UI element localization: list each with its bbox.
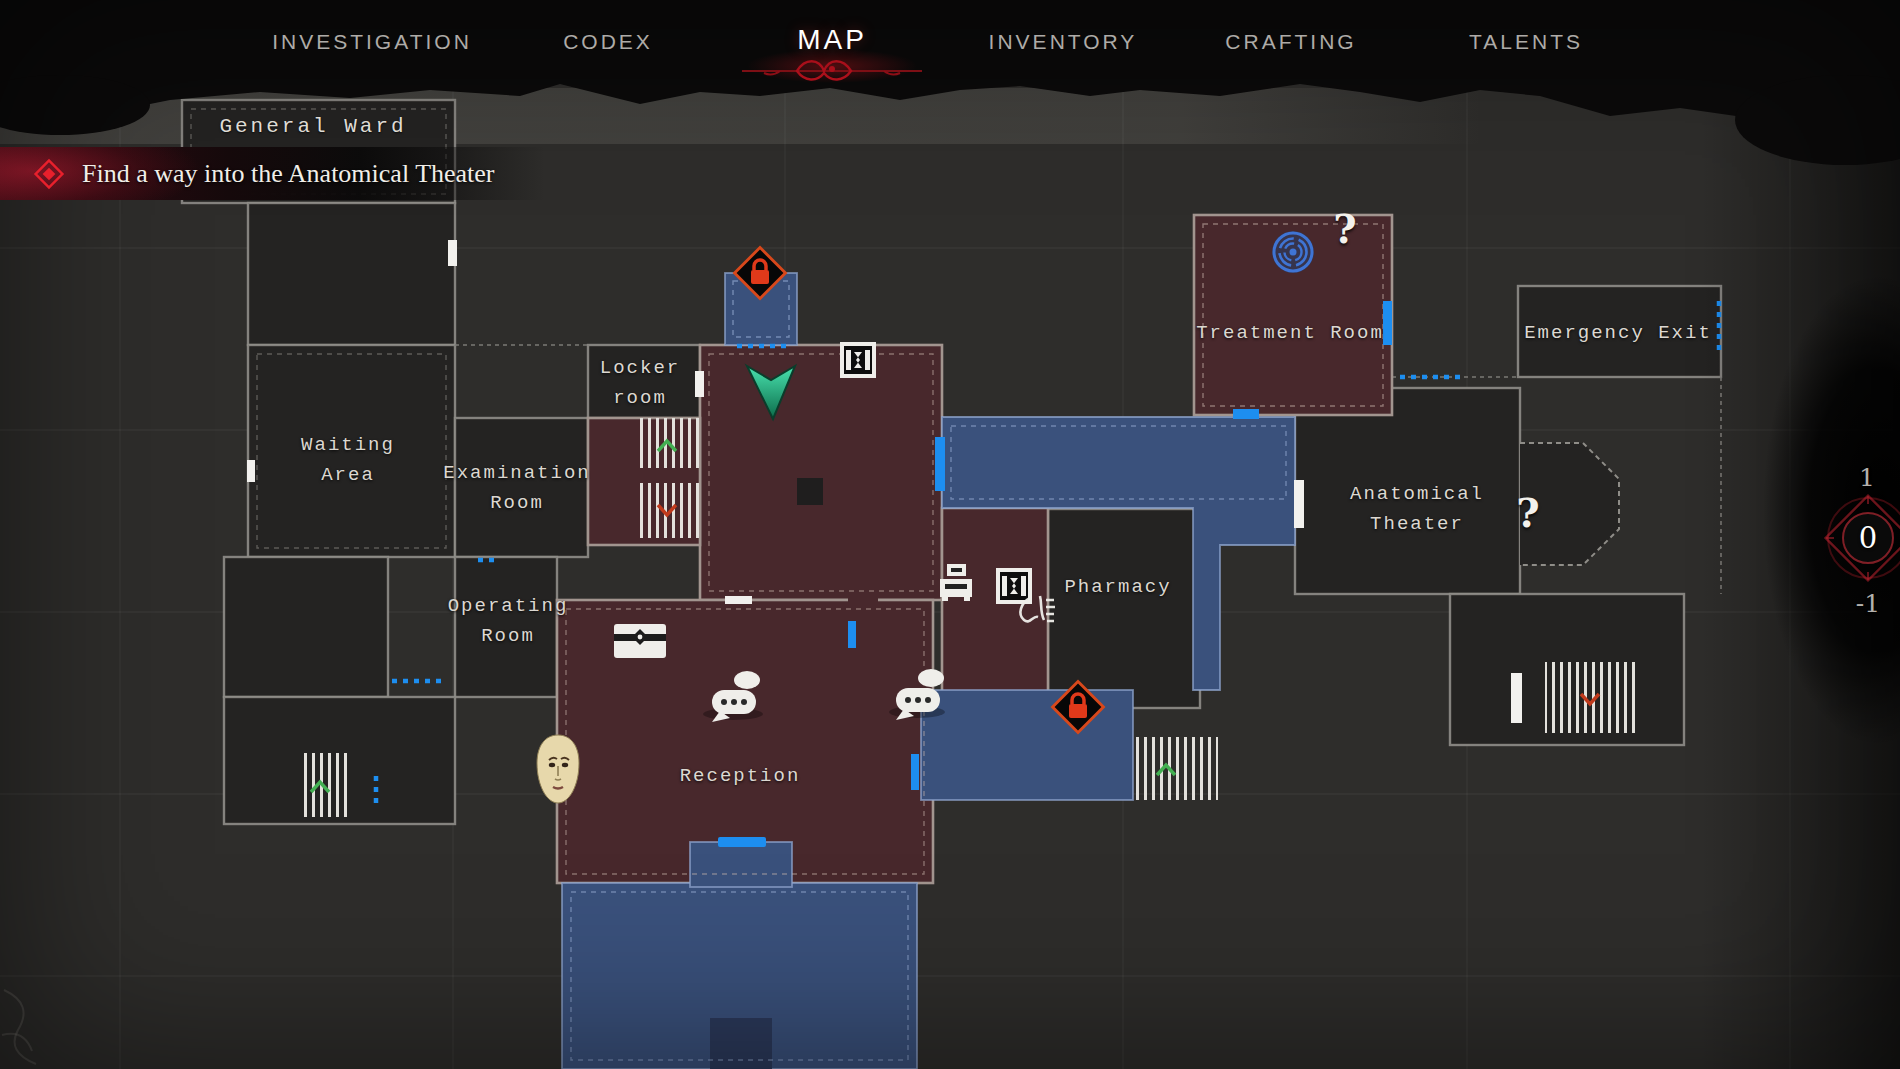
- wall-opening: [848, 596, 878, 604]
- room-main-hall: [700, 345, 942, 600]
- tab-map[interactable]: MAP: [797, 24, 867, 56]
- room-label-pharmacy: Pharmacy: [1064, 572, 1171, 602]
- room-label-examination-room: Examination Room: [443, 458, 590, 519]
- zone-label: General Ward: [219, 115, 406, 138]
- tab-crafting[interactable]: CRAFTING: [1225, 30, 1356, 54]
- room-label-waiting-area: Waiting Area: [301, 430, 395, 491]
- room-pharmacy: [1048, 509, 1200, 708]
- objective-diamond-icon: [33, 158, 65, 190]
- floor-button-0[interactable]: 0: [1859, 521, 1877, 555]
- room-label-operating-room: Operating Room: [448, 591, 569, 652]
- stairs-block-s: [1133, 737, 1218, 800]
- room-label-anatomical-theater: Anatomical Theater: [1350, 479, 1484, 540]
- unknown-marker: ?: [1333, 205, 1356, 252]
- floor-button-minus1[interactable]: -1: [1856, 589, 1880, 618]
- tab-investigation[interactable]: INVESTIGATION: [272, 30, 472, 54]
- hall-pillar: [797, 478, 823, 505]
- elevator-icon: [998, 570, 1030, 602]
- room-registers: [942, 508, 1048, 708]
- room-label-treatment-room: Treatment Room: [1196, 318, 1384, 348]
- tab-inventory[interactable]: INVENTORY: [989, 30, 1138, 54]
- stairs-block-se: [1545, 662, 1635, 733]
- quest-banner: Find a way into the Anatomical Theater: [0, 147, 545, 200]
- room-label-locker-room: Locker room: [600, 353, 680, 414]
- room-label-reception: Reception: [680, 761, 801, 791]
- floor-button-1[interactable]: 1: [1859, 463, 1875, 492]
- elevator-icon: [842, 344, 874, 376]
- quest-objective-text: Find a way into the Anatomical Theater: [82, 159, 495, 189]
- tab-codex[interactable]: CODEX: [563, 30, 653, 54]
- unknown-marker: ?: [1516, 489, 1539, 536]
- room-label-emergency-exit: Emergency Exit: [1524, 318, 1712, 348]
- storage-chest-icon: [614, 624, 666, 658]
- maze-icon: [1272, 231, 1314, 273]
- tab-talents[interactable]: TALENTS: [1469, 30, 1583, 54]
- blue-room-pillar: [710, 1018, 772, 1069]
